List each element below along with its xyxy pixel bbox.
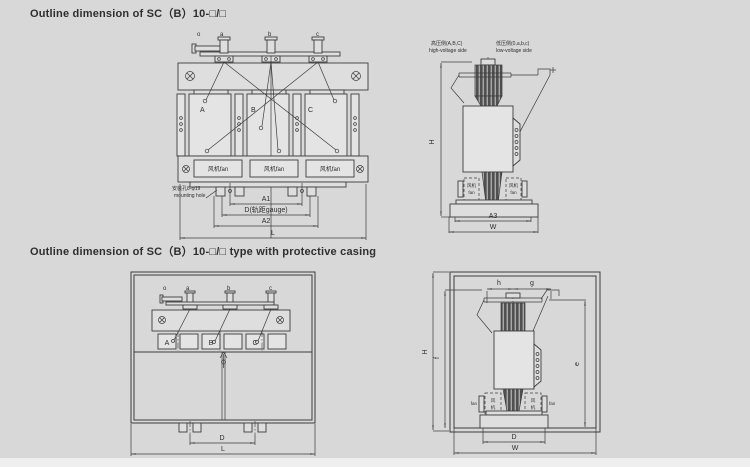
- cs-fan-right-cn-2: 机: [531, 404, 536, 411]
- fan-left-label-en: fan: [468, 190, 475, 195]
- title-bottom: Outline dimension of SC（B）10-□/□ type wi…: [30, 245, 376, 258]
- tap-board: [513, 118, 520, 166]
- fan-right-label-cn: 风机: [509, 182, 518, 189]
- lv-side-label-cn: 低压侧(0,a,b,c): [496, 40, 530, 47]
- title-top: Outline dimension of SC（B）10-□/□: [30, 7, 226, 20]
- transformer-outline-drawing: Outline dimension of SC（B）10-□/□ Outline…: [0, 0, 750, 467]
- fan-right-label-en: fan: [510, 190, 517, 195]
- base-lip: [456, 200, 532, 204]
- lv-coil: [475, 65, 502, 96]
- c-terminal-o-rod: [162, 297, 182, 301]
- beam-tabs: [194, 90, 344, 94]
- phase-a-label: A: [200, 107, 205, 114]
- dim-label-cs-H: H: [422, 349, 429, 354]
- dim-label-cs-h: h: [497, 280, 501, 287]
- hv-side-label-en: high-voltage side: [429, 48, 467, 54]
- fan-left-label-cn: 风机: [467, 182, 476, 189]
- dim-label-l: L: [271, 230, 275, 237]
- base-strip: [190, 182, 346, 187]
- lv-side-label-en: low-voltage side: [496, 48, 532, 54]
- dim-label-cs-e: e: [574, 362, 581, 366]
- cs-base-lip: [486, 411, 542, 415]
- mounting-hole-note-cn: 安装孔8-φ19: [172, 185, 200, 192]
- c-busbar: [166, 302, 274, 305]
- cs-base: [480, 415, 548, 428]
- cs-tap-board: [534, 344, 541, 387]
- dim-label-cs-f: f: [434, 357, 441, 359]
- c-phase-a-label: A: [165, 340, 170, 347]
- background: [0, 0, 750, 467]
- cs-fan-right-label-en: fan: [549, 401, 556, 406]
- c-terminal-plates: [183, 305, 278, 309]
- clamp-right: [522, 181, 527, 197]
- cs-coil-top-cap: [506, 293, 520, 298]
- dim-label-cl: L: [221, 446, 225, 453]
- hv-side-label-cn: 高压侧(A,B,C): [431, 40, 463, 47]
- dim-label-h: H: [429, 139, 436, 144]
- coil-body: [463, 106, 513, 172]
- terminal-o-rod: [195, 46, 220, 51]
- dim-label-a2: A2: [262, 218, 271, 225]
- dim-label-cs-w: W: [512, 445, 519, 452]
- dim-label-cs-d: D: [511, 434, 516, 441]
- clamp-left: [458, 181, 463, 197]
- coil-top-cap: [481, 59, 495, 65]
- drawing-page: Outline dimension of SC（B）10-□/□ Outline…: [0, 0, 750, 467]
- bottom-margin: [0, 458, 750, 467]
- mounting-hole-note-en: mounting hole: [174, 193, 206, 199]
- cs-coil-body: [494, 331, 534, 389]
- dim-label-gauge: D(轨距gauge): [244, 205, 287, 214]
- phase-b-label: B: [251, 107, 256, 114]
- cs-clamp-right: [542, 396, 547, 412]
- dim-label-cs-g: g: [530, 280, 534, 287]
- cs-clamp-left: [479, 396, 484, 412]
- fan-label-1: 风机fan: [208, 165, 228, 173]
- fan-label-2: 风机fan: [264, 165, 284, 173]
- cs-fan-left-cn-2: 机: [491, 404, 496, 411]
- phase-c-label: C: [308, 107, 313, 114]
- dim-label-cd: D: [219, 435, 224, 442]
- cs-fan-left-label-en: fan: [471, 401, 478, 406]
- dim-label-a3: A3: [489, 213, 498, 220]
- dim-label-a1: A1: [262, 196, 271, 203]
- cs-lv-coil: [501, 303, 525, 331]
- dim-label-w: W: [490, 224, 497, 231]
- fan-label-3: 风机fan: [320, 165, 340, 173]
